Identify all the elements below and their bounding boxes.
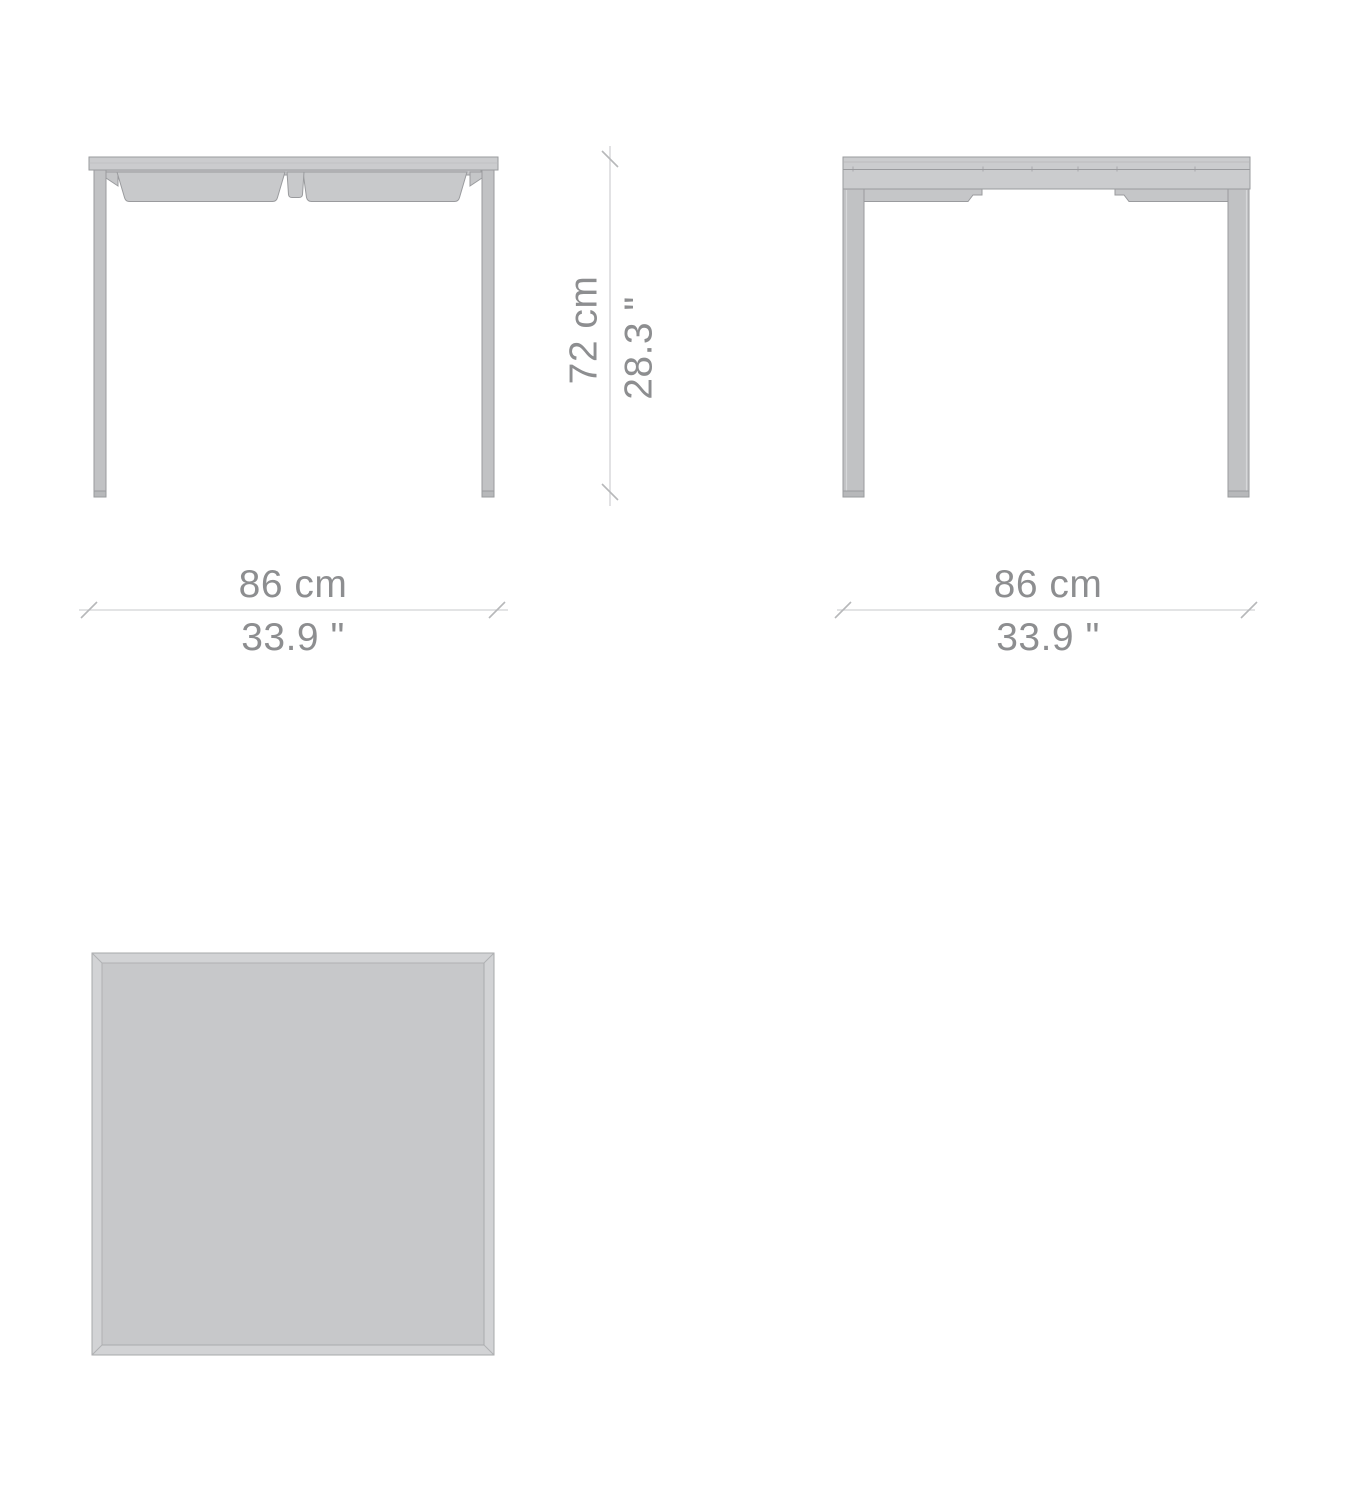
front-right-foot (482, 491, 494, 497)
front-width-label-imperial: 33.9 " (78, 618, 508, 657)
side-left-rail (864, 189, 982, 202)
side-right-foot (1228, 491, 1249, 497)
front-width-label-metric: 86 cm (78, 565, 508, 604)
side-right-rail (1115, 189, 1228, 202)
front-center-divider-tab (287, 172, 304, 198)
side-right-leg (1228, 189, 1249, 497)
side-view-drawing (835, 140, 1265, 510)
front-left-bracket (106, 172, 118, 186)
front-left-leg (94, 170, 106, 497)
top-view-drawing (85, 948, 505, 1366)
front-view-drawing (78, 140, 518, 510)
height-label-imperial: 28.3 " (620, 296, 659, 400)
side-width-label-metric: 86 cm (833, 565, 1263, 604)
front-left-foot (94, 491, 106, 497)
front-right-drawer-tray (303, 172, 467, 202)
front-right-leg (482, 170, 494, 497)
dimension-drawing-canvas: 72 cm 28.3 " 86 cm 33.9 " 86 cm 33.9 " (0, 0, 1371, 1500)
front-left-drawer-tray (117, 172, 285, 202)
side-width-label-imperial: 33.9 " (833, 618, 1263, 657)
front-right-bracket (470, 172, 482, 186)
height-label-metric: 72 cm (565, 276, 604, 385)
side-left-foot (843, 491, 864, 497)
plan-inner-surface (102, 963, 484, 1345)
